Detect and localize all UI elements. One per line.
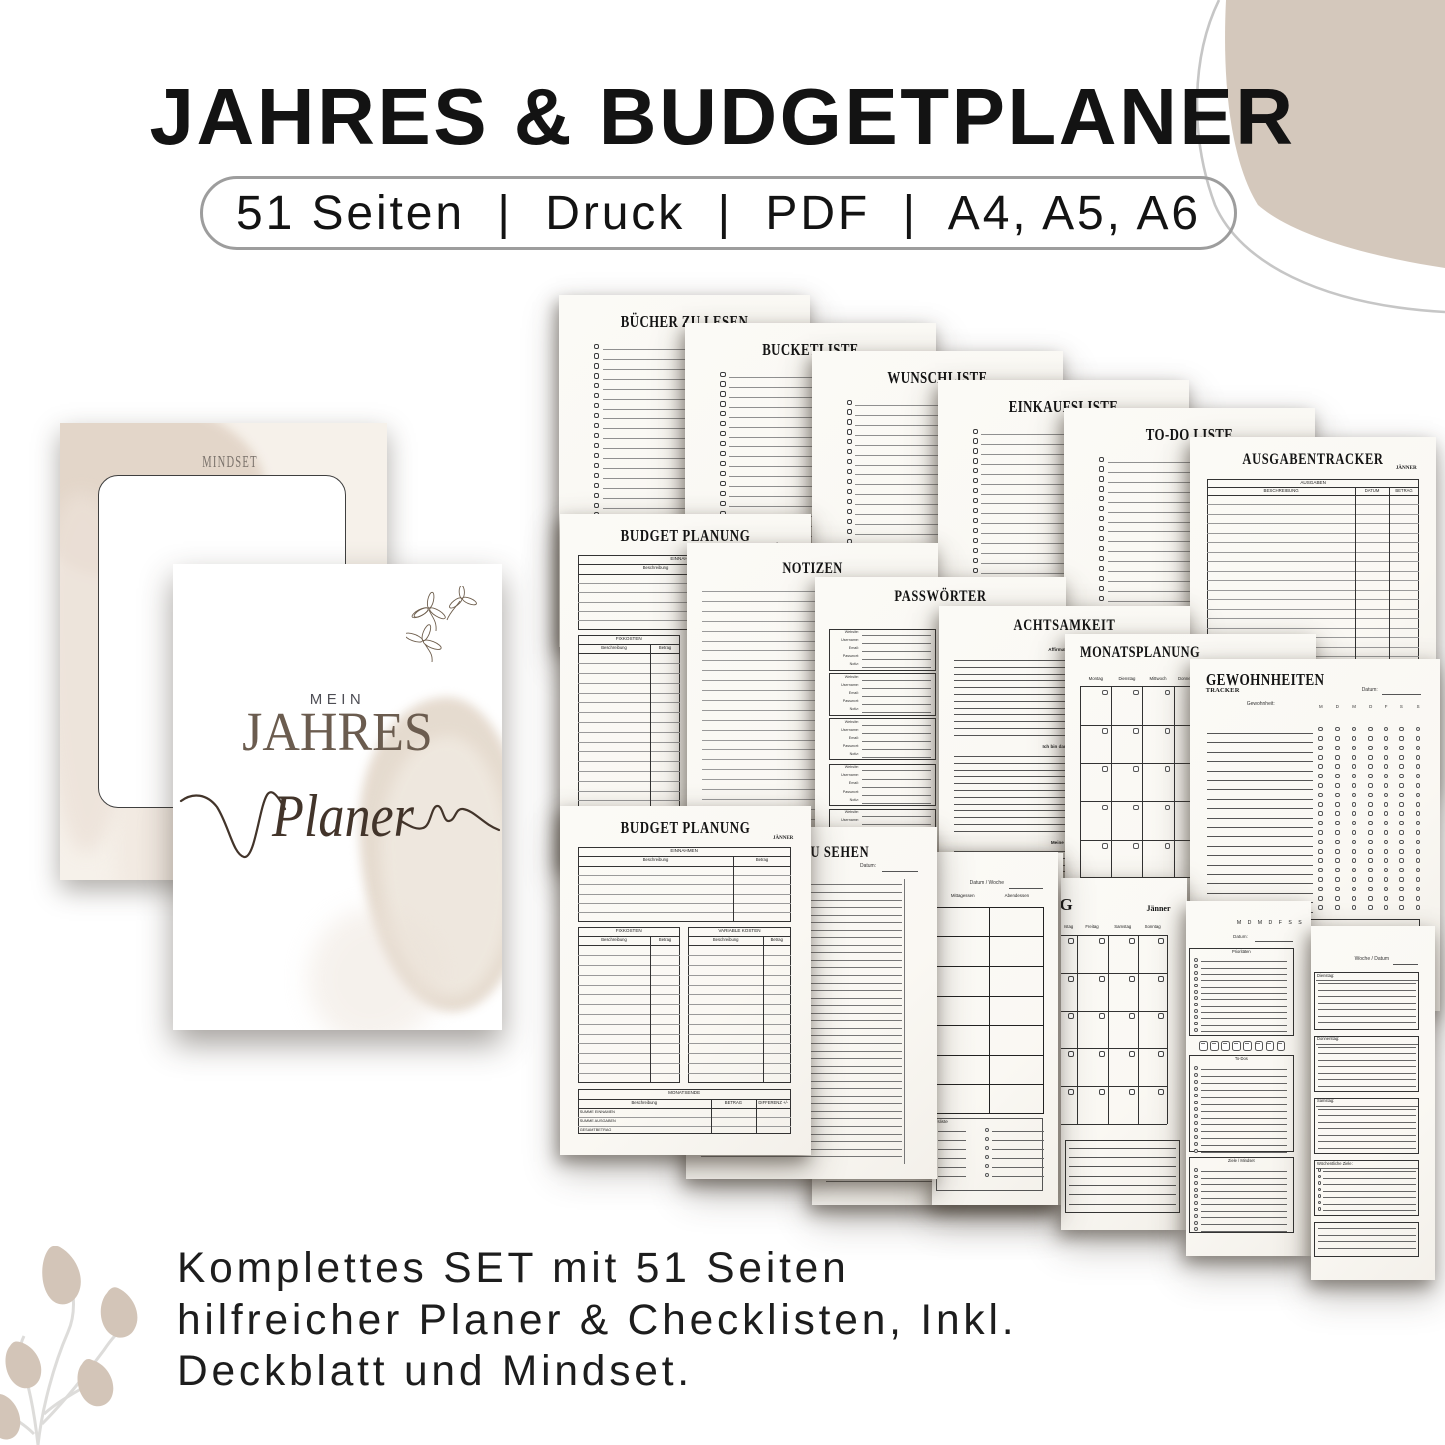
svg-text:Planer: Planer [271,783,414,849]
